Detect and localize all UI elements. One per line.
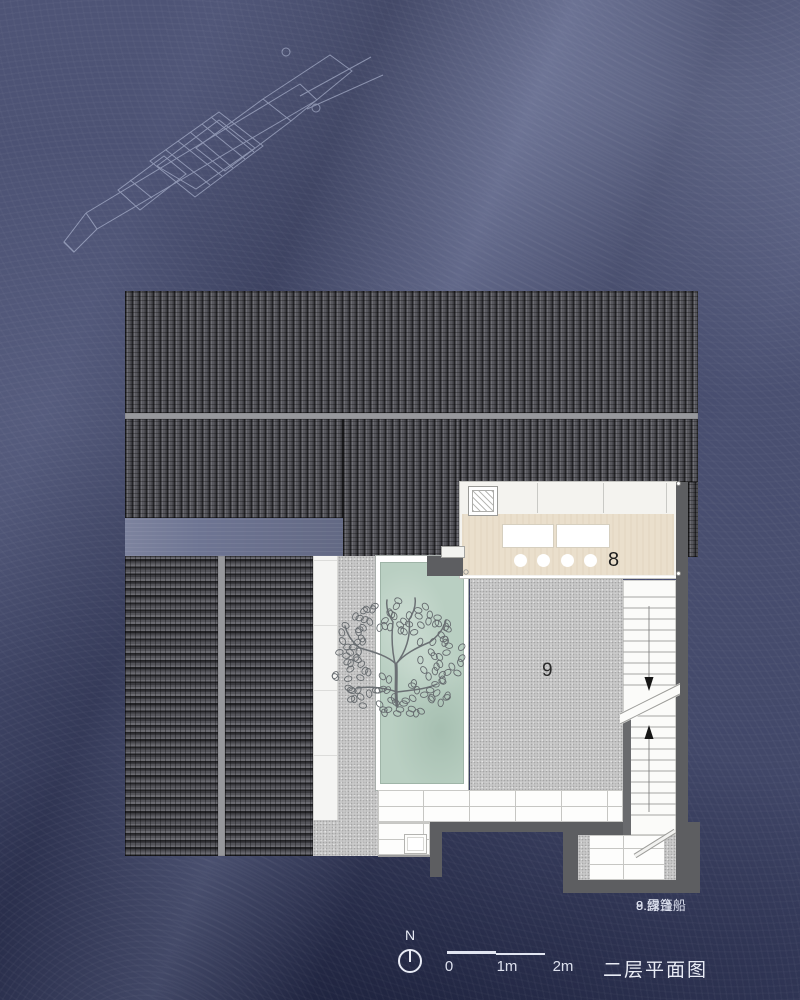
second-roof-band-middle bbox=[343, 419, 460, 558]
notch-wall-left bbox=[430, 822, 442, 877]
notch-wall-top bbox=[430, 822, 563, 832]
paving-slab bbox=[404, 834, 427, 854]
stool bbox=[584, 554, 597, 567]
roof-joint-line bbox=[666, 483, 667, 513]
scale-tick-2m: 2m bbox=[553, 958, 574, 975]
second-roof-band-left bbox=[125, 419, 343, 518]
stool bbox=[514, 554, 527, 567]
upper-roof-band bbox=[125, 291, 698, 413]
roof-joint-line bbox=[537, 483, 538, 513]
roof-ridge-horizontal bbox=[125, 413, 698, 419]
plan-title: 二层平面图 bbox=[603, 955, 708, 982]
landing-gravel-right bbox=[664, 835, 676, 880]
right-eave-strip bbox=[688, 482, 698, 557]
legend-entry: 9.露台 bbox=[636, 897, 673, 915]
scale-bar-segment bbox=[447, 951, 496, 954]
second-roof-band-right bbox=[460, 419, 698, 482]
column-dot bbox=[676, 481, 681, 486]
stair-side-wall bbox=[623, 712, 631, 835]
terrace-main bbox=[470, 578, 623, 790]
scale-tick-1m: 1m bbox=[497, 958, 518, 975]
scale-bar-segment bbox=[496, 953, 545, 955]
court-corner-notch bbox=[441, 546, 465, 558]
court-corner-wall bbox=[427, 556, 463, 576]
hatch-pattern bbox=[472, 490, 494, 512]
stone-paving bbox=[378, 790, 623, 822]
north-needle bbox=[409, 950, 411, 962]
column-dot bbox=[676, 571, 681, 576]
stool bbox=[537, 554, 550, 567]
terrace-left bbox=[338, 556, 378, 856]
terrace-under-strip bbox=[313, 820, 338, 856]
table bbox=[556, 524, 610, 548]
lower-left-roof-a bbox=[125, 556, 218, 856]
landing-north-wall bbox=[563, 822, 623, 835]
landing-floor bbox=[578, 835, 676, 880]
roof-joint-line bbox=[603, 483, 604, 513]
skylight-hatch bbox=[468, 486, 498, 516]
boat-sketch bbox=[64, 48, 383, 252]
skylight-strip bbox=[313, 556, 338, 820]
stool bbox=[561, 554, 574, 567]
walkway-band bbox=[125, 518, 343, 556]
table bbox=[502, 524, 554, 548]
landing-gravel-left bbox=[578, 835, 590, 880]
east-wall bbox=[676, 482, 688, 822]
scale-tick-0: 0 bbox=[445, 958, 453, 975]
roof-ridge-vertical bbox=[218, 556, 225, 856]
landing-south-wall bbox=[563, 880, 700, 893]
room-number-9: 9 bbox=[542, 660, 553, 682]
lower-left-roof-b bbox=[225, 556, 313, 856]
floor-plan-canvas: 8 9 8.绿篷船 9.露台 N 0 1m 2m 二层平面图 bbox=[0, 0, 800, 1000]
room-number-8: 8 bbox=[608, 549, 619, 572]
north-label: N bbox=[405, 927, 415, 943]
green-court bbox=[380, 562, 464, 784]
